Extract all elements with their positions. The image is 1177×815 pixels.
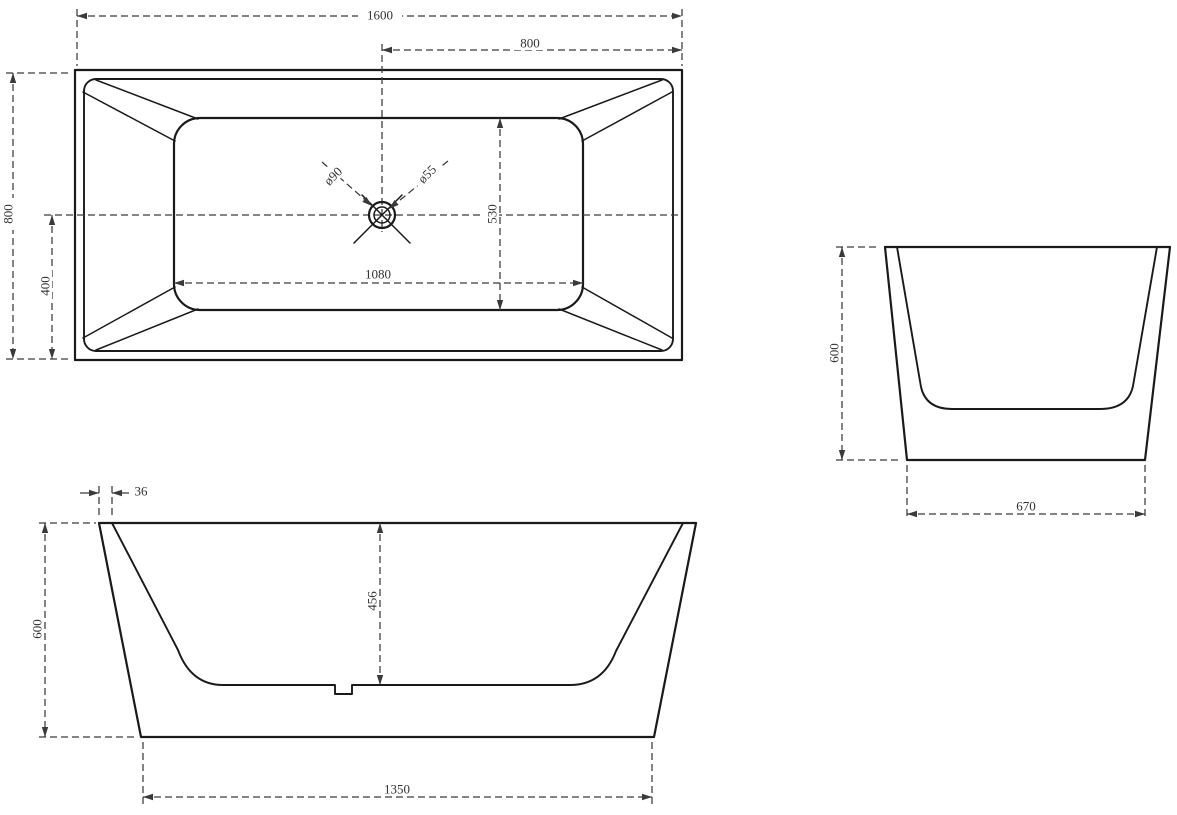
dimension-label: 36 — [131, 484, 151, 499]
arrowhead — [573, 280, 583, 286]
dim-drain-inner-diameter: ø55 — [387, 158, 448, 211]
dimension-text: 400 — [38, 276, 53, 296]
bathtub-technical-drawing: 1600 800 800 — [0, 0, 1177, 815]
top-view: 1600 800 800 — [0, 7, 682, 360]
front-basin-profile — [112, 523, 683, 694]
arrowhead — [839, 247, 845, 257]
dim-side-base-width: 670 — [907, 465, 1145, 519]
arrowhead — [112, 490, 122, 496]
dimension-label: 400 — [37, 270, 53, 302]
arrowhead — [377, 523, 383, 533]
dim-front-inner-depth: 456 — [364, 523, 383, 685]
dimension-text: 1080 — [365, 267, 391, 282]
dimension-text: 800 — [520, 36, 540, 51]
arrowhead — [672, 47, 682, 53]
arrowhead — [174, 280, 184, 286]
dimension-text: 456 — [365, 591, 380, 611]
dimension-label: 1080 — [357, 266, 399, 282]
dim-plan-drain-to-end: 800 — [382, 35, 682, 53]
extension-lines — [99, 486, 112, 519]
drain — [354, 195, 410, 243]
dimension-label: ø90 — [317, 160, 349, 192]
dimension-text: 1350 — [384, 782, 410, 797]
dim-side-height: 600 — [826, 247, 901, 460]
arrowhead — [497, 118, 503, 128]
dim-plan-overall-width: 800 — [0, 73, 72, 359]
dimension-label: 600 — [826, 337, 842, 369]
dim-front-base-length: 1350 — [143, 742, 652, 804]
arrowhead — [642, 794, 652, 800]
dimension-label: 600 — [29, 613, 45, 645]
arrowhead — [1135, 511, 1145, 517]
dimension-text: 36 — [135, 484, 149, 499]
arrowhead — [49, 349, 55, 359]
front-outline — [99, 523, 696, 737]
arrowhead — [49, 215, 55, 225]
dim-plan-basin-width: 530 — [484, 118, 503, 310]
arrowhead — [672, 13, 682, 19]
dimension-label: 800 — [0, 198, 16, 230]
side-view: 600 670 — [826, 247, 1170, 519]
arrowhead — [10, 73, 16, 83]
arrowhead — [382, 47, 392, 53]
dimension-label: 1600 — [358, 7, 402, 23]
arrowhead — [839, 450, 845, 460]
front-view: 36 600 456 — [29, 484, 696, 805]
dimension-label: 456 — [364, 585, 380, 617]
dimension-label: 800 — [514, 35, 546, 51]
dimension-text: 600 — [827, 343, 842, 363]
extension-lines — [39, 523, 138, 737]
dimension-text: 600 — [30, 619, 45, 639]
dimension-text: 670 — [1016, 499, 1036, 514]
arrowhead — [377, 675, 383, 685]
arrowhead — [42, 523, 48, 533]
arrowhead — [143, 794, 153, 800]
dimension-text: 1600 — [367, 8, 393, 23]
dimension-label: 530 — [484, 198, 500, 230]
extension-lines — [6, 73, 72, 359]
dim-drain-outer-diameter: ø90 — [317, 160, 374, 208]
dim-front-rim-offset: 36 — [80, 484, 151, 520]
arrowhead — [89, 490, 99, 496]
side-outline — [885, 247, 1170, 460]
dim-front-height: 600 — [29, 523, 138, 737]
extension-lines — [836, 247, 901, 460]
dim-plan-overall-length: 1600 — [77, 7, 682, 66]
dim-plan-center-to-side: 400 — [37, 215, 55, 359]
arrowhead — [10, 349, 16, 359]
drawing-page: 1600 800 800 — [0, 0, 1177, 815]
dimension-label: 670 — [1010, 498, 1042, 514]
arrowhead — [907, 511, 917, 517]
arrowhead — [77, 13, 87, 19]
dimension-text: 530 — [485, 204, 500, 224]
dimension-text: 800 — [1, 204, 16, 224]
dimension-label: ø55 — [411, 158, 443, 190]
dimension-label: 1350 — [376, 781, 418, 797]
arrowhead — [42, 727, 48, 737]
arrowhead — [497, 300, 503, 310]
side-basin-profile — [897, 247, 1157, 409]
dim-plan-basin-length: 1080 — [174, 266, 583, 286]
